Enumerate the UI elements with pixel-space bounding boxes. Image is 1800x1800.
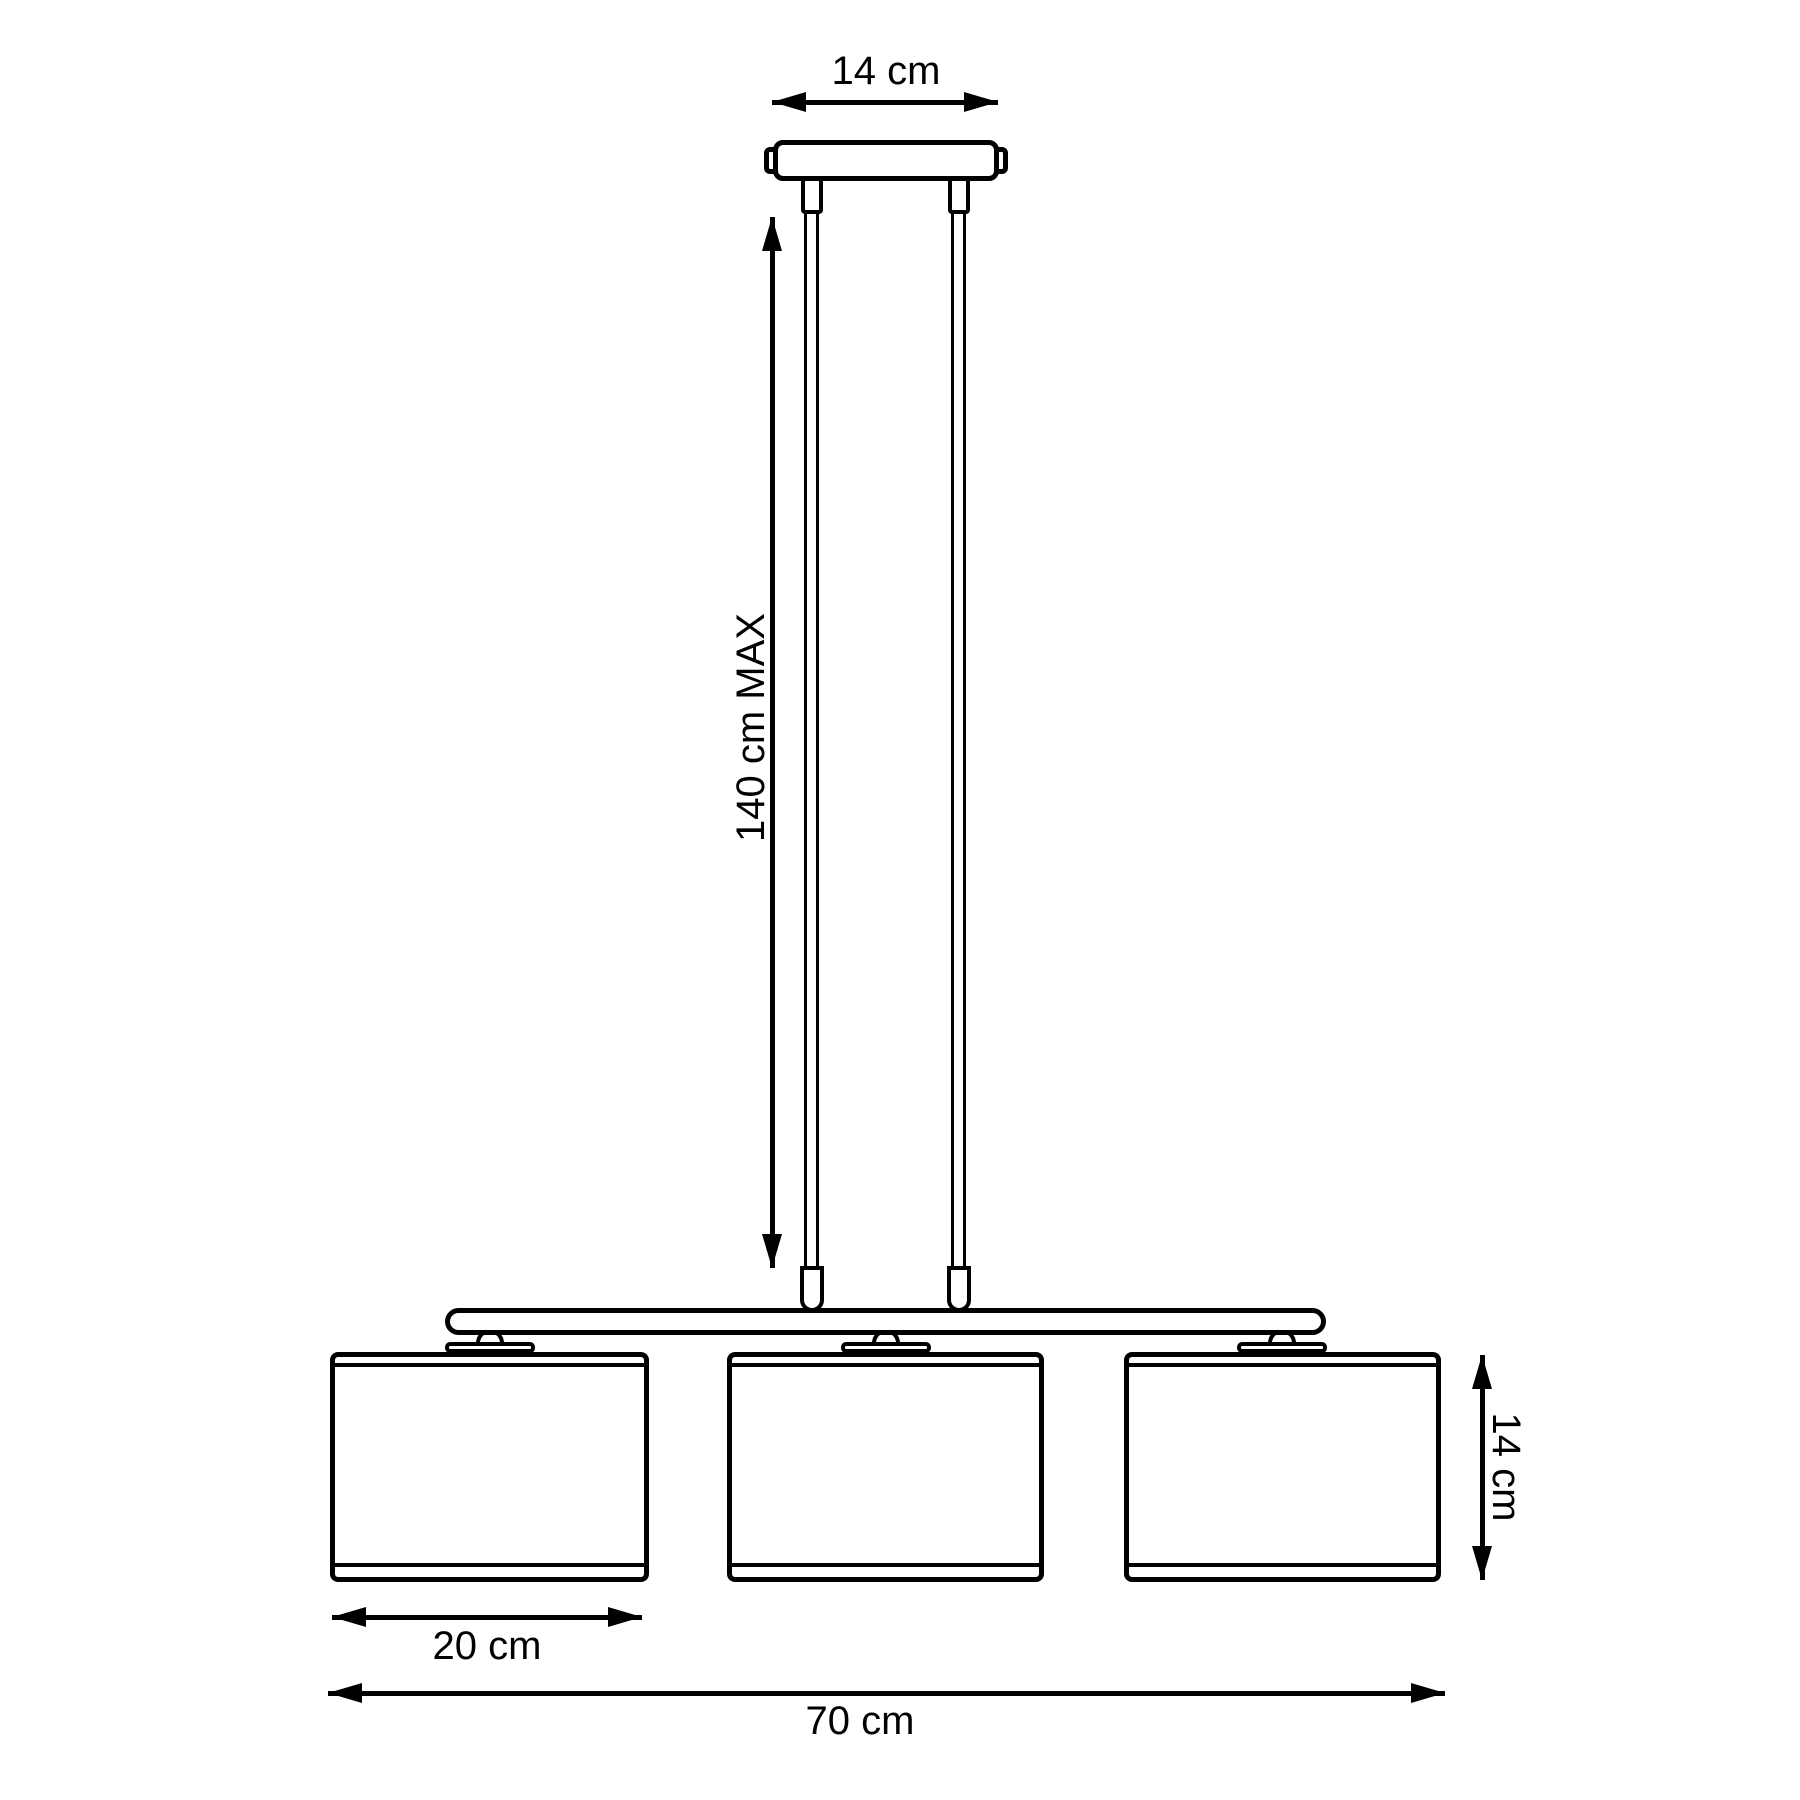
lampshade-middle-bottom-band [732, 1563, 1039, 1567]
support-bar [445, 1308, 1326, 1335]
arrowhead-left-icon [332, 1607, 366, 1627]
cord-grip-left [800, 1266, 824, 1312]
cable-gland-left [801, 177, 823, 214]
lamp-dimension-diagram: 14 cm 140 cm MAX 14 cm 20 [0, 0, 1800, 1800]
cable-gland-right [948, 177, 970, 214]
dimension-label-shade-height: 14 cm [1485, 1367, 1527, 1567]
arrowhead-left-icon [772, 92, 806, 112]
dimension-label-total-width: 70 cm [760, 1700, 960, 1742]
suspension-cable-right [951, 212, 966, 1270]
dimension-line-shade-width [332, 1615, 642, 1620]
arrowhead-up-icon [762, 217, 782, 251]
dimension-label-shade-width: 20 cm [387, 1625, 587, 1667]
lampshade-middle-top-band [732, 1363, 1039, 1367]
dimension-line-total-width [328, 1691, 1445, 1696]
arrowhead-right-icon [964, 92, 998, 112]
lampshade-left [330, 1352, 649, 1582]
lampshade-right [1124, 1352, 1441, 1582]
suspension-cable-left [804, 212, 819, 1270]
arrowhead-right-icon [608, 1607, 642, 1627]
lampshade-right-top-band [1129, 1363, 1436, 1367]
dimension-label-canopy-width: 14 cm [786, 50, 986, 92]
lampshade-right-bottom-band [1129, 1563, 1436, 1567]
dimension-label-suspension-height: 140 cm MAX [730, 642, 772, 842]
lampshade-left-top-band [335, 1363, 644, 1367]
lampshade-middle [727, 1352, 1044, 1582]
arrowhead-right-icon [1411, 1683, 1445, 1703]
cord-grip-right [947, 1266, 971, 1312]
lampshade-left-bottom-band [335, 1563, 644, 1567]
ceiling-canopy [773, 140, 999, 181]
arrowhead-left-icon [328, 1683, 362, 1703]
arrowhead-down-icon [762, 1234, 782, 1268]
